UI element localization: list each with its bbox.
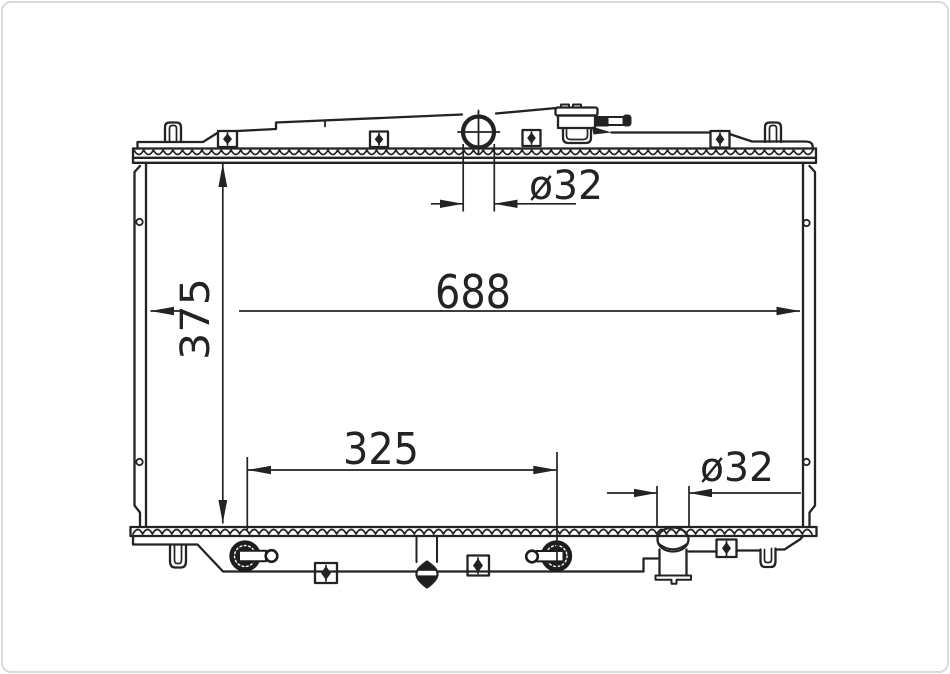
oil-cooler-fitting-left: [231, 542, 278, 571]
overflow-pipe-end: [623, 115, 632, 127]
filler-neck: [556, 105, 632, 144]
dimensions: [151, 144, 802, 571]
arrowhead-left-icon: [151, 307, 175, 315]
top-bracket-1: [218, 131, 237, 147]
radiator-technical-drawing: 688 375 325 ø32 ø32: [0, 0, 950, 674]
arrowhead-right-icon: [634, 489, 657, 497]
dim-label-inlet-diameter: ø32: [529, 163, 603, 209]
arrowhead-left-icon: [247, 466, 271, 474]
dimension-outlet-diameter: [607, 486, 801, 528]
drain-plug: [417, 537, 438, 588]
dim-label-outlet-diameter: ø32: [700, 445, 774, 491]
dimension-overall-height: [218, 164, 227, 524]
arrowhead-right-icon: [533, 466, 557, 474]
bottom-mount-peg-right: [761, 549, 776, 568]
dim-label-fitting-span: 325: [343, 424, 419, 475]
arrowhead-right-icon: [777, 307, 801, 315]
inlet-pipe-circle: [458, 111, 500, 154]
top-tank-profile: [138, 108, 814, 149]
oil-cooler-fitting-right: [526, 542, 571, 571]
bottom-bracket-3: [717, 540, 737, 558]
left-side-plate: [135, 163, 147, 527]
bottom-mount-peg-left: [170, 545, 186, 568]
top-bracket-2: [370, 132, 388, 148]
top-bracket-3: [523, 130, 541, 146]
bottom-tank-crimp-band: [131, 527, 817, 536]
arrowhead-up-icon: [218, 164, 227, 188]
top-mount-pin-left: [165, 123, 181, 143]
right-side-plate: [803, 163, 815, 527]
radiator-drawing-page: 688 375 325 ø32 ø32: [0, 0, 950, 674]
dim-label-overall-width: 688: [435, 265, 511, 319]
radiator-outline: [131, 105, 817, 588]
arrowhead-right-icon: [440, 200, 463, 208]
dim-label-overall-height: 375: [173, 278, 219, 360]
top-bracket-4: [711, 131, 730, 148]
arrowhead-left-icon: [494, 200, 517, 208]
bottom-bracket-1: [315, 563, 337, 583]
arrowhead-down-icon: [218, 500, 227, 524]
top-tank-crimp-band: [133, 149, 816, 163]
top-mount-pin-right: [765, 123, 781, 143]
